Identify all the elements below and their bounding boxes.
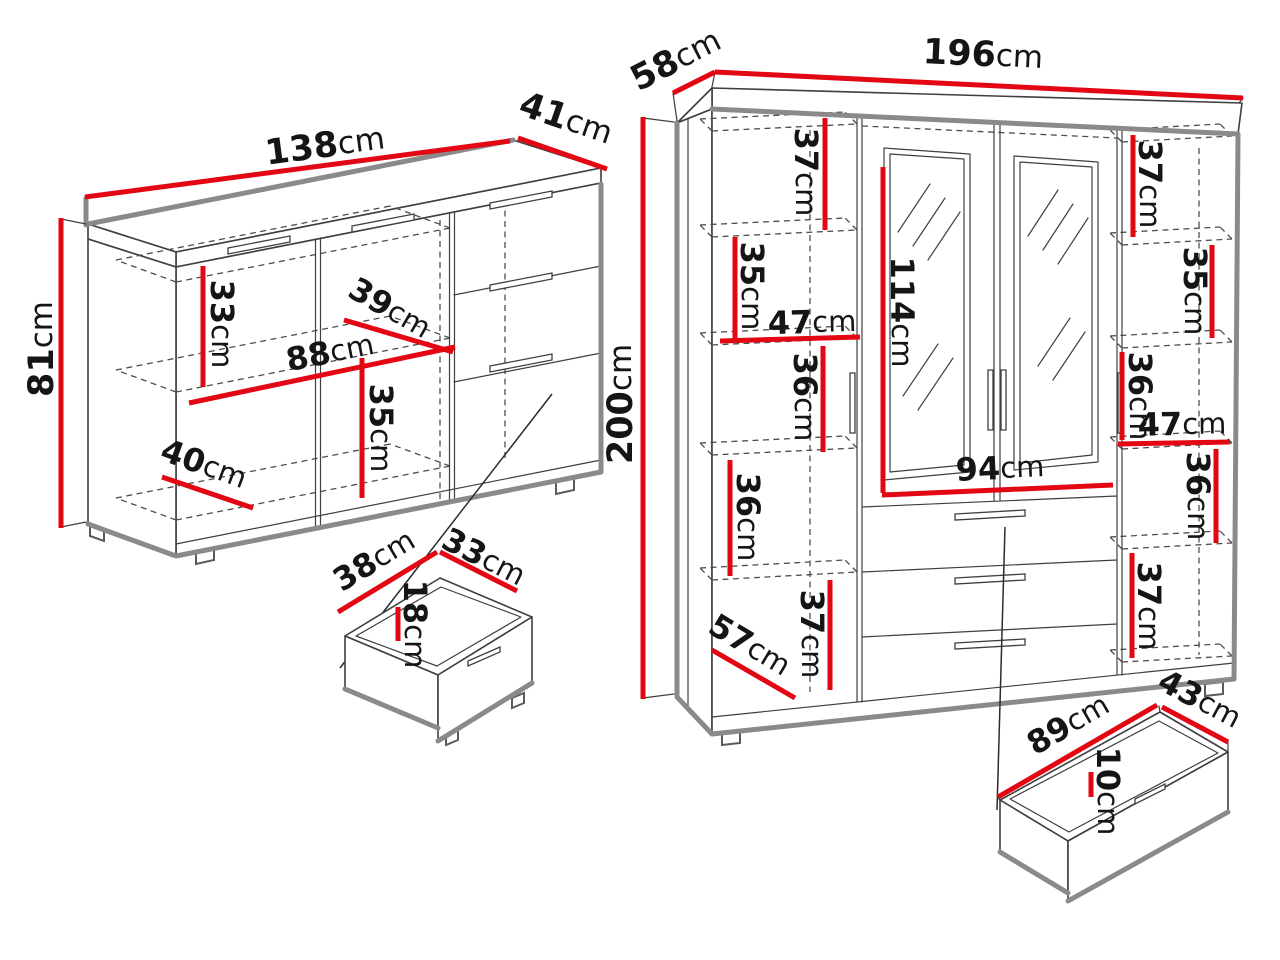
dim-label-wardrobe-left-gap3: 36cm xyxy=(786,353,824,442)
dim-label-wardrobe-right-gap2: 35cm xyxy=(1176,247,1214,336)
sideboard-dimension-ticks xyxy=(61,219,86,527)
dim-label-wardrobe-right-width: 47cm xyxy=(1137,404,1226,444)
dim-label-sideboard-width: 138cm xyxy=(263,118,388,173)
dim-label-wardrobe-center-width: 94cm xyxy=(955,447,1045,489)
dim-label-wardrobe-left-width: 47cm xyxy=(767,302,857,342)
dim-label-wardrobe-drawer-height: 10cm xyxy=(1089,747,1127,836)
dim-label-wardrobe-left-gap1: 37cm xyxy=(787,128,825,217)
dim-label-wardrobe-right-gap4: 36cm xyxy=(1179,452,1217,541)
diagram-canvas: 138cm 41cm 81cm 33cm 39cm 88cm 35cm 40cm… xyxy=(0,0,1280,960)
dim-label-sideboard-height: 81cm xyxy=(22,301,62,397)
dim-label-sideboard-middle-shelf-gap: 35cm xyxy=(362,384,400,473)
dim-label-sideboard-drawer-height: 18cm xyxy=(396,580,434,669)
dim-label-wardrobe-height: 200cm xyxy=(601,344,641,464)
dim-label-wardrobe-right-gap1: 37cm xyxy=(1131,140,1169,229)
dim-label-sideboard-top-shelf-gap: 33cm xyxy=(203,280,241,369)
dim-label-wardrobe-left-gap2: 35cm xyxy=(733,242,771,331)
furniture-dimensions-diagram: 138cm 41cm 81cm 33cm 39cm 88cm 35cm 40cm… xyxy=(0,0,1280,960)
dim-label-wardrobe-width: 196cm xyxy=(922,32,1044,78)
dim-label-wardrobe-left-gap5: 37cm xyxy=(793,590,831,679)
dim-label-wardrobe-mirror-height: 114cm xyxy=(883,257,921,368)
sideboard-drawing: 138cm 41cm 81cm 33cm 39cm 88cm 35cm 40cm xyxy=(22,84,618,564)
sideboard-left-side-face xyxy=(88,239,176,556)
dim-label-wardrobe-left-gap4: 36cm xyxy=(729,473,767,562)
dim-label-wardrobe-right-gap5: 37cm xyxy=(1130,562,1168,651)
wardrobe-drawing: 200cm 196cm 58cm 37cm 35cm 47cm 36cm 36c… xyxy=(601,20,1243,745)
